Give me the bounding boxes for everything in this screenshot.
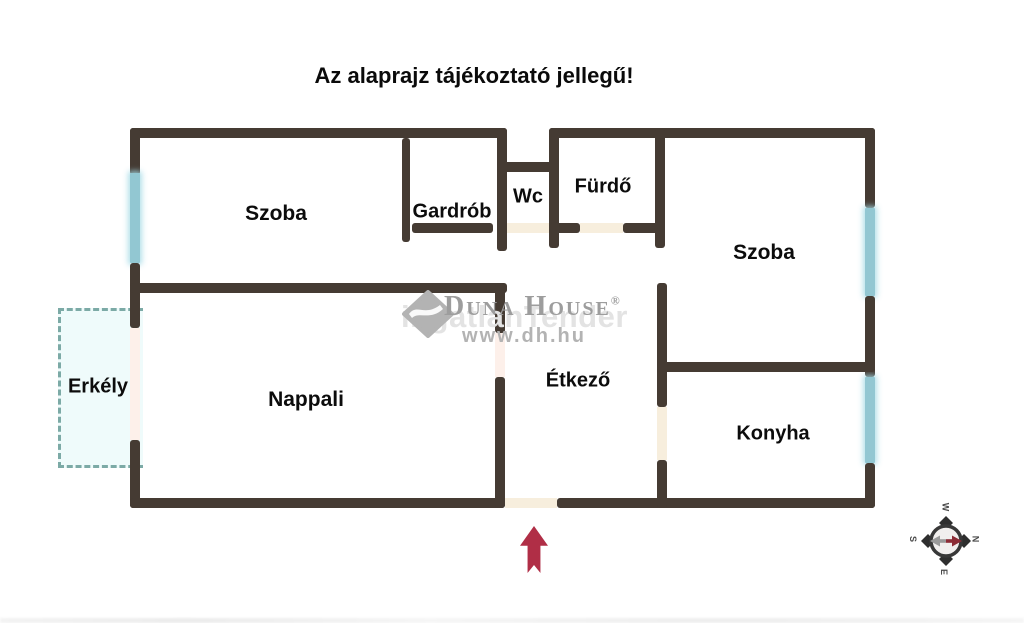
- wall: [865, 128, 875, 208]
- wall: [130, 128, 507, 138]
- wall-gardrob-left: [402, 138, 410, 242]
- wall: [130, 498, 505, 508]
- room-label-szoba-left: Szoba: [245, 202, 307, 226]
- room-label-nappali: Nappali: [268, 388, 344, 412]
- bottom-artifact: [0, 618, 1024, 623]
- wall: [549, 223, 580, 233]
- watermark-brand: Duna House®: [444, 291, 620, 323]
- wall-gardrob-wc-divider: [497, 128, 507, 251]
- room-label-wc: Wc: [513, 186, 543, 209]
- floor-plan: Az alaprajz tájékoztató jellegű! Szoba G…: [0, 0, 1024, 623]
- compass-letter-right: N: [970, 536, 980, 543]
- konyha-door-opening: [657, 407, 667, 460]
- registered-mark: ®: [611, 294, 620, 308]
- room-label-furdo: Fürdő: [575, 176, 632, 199]
- wall-furdo-right: [655, 128, 665, 248]
- balcony-door-opening: [130, 328, 140, 440]
- compass-letter-bottom: E: [939, 569, 949, 575]
- room-label-erkely: Erkély: [68, 376, 128, 399]
- window-right-lower: [865, 377, 875, 463]
- wall-gardrob-bottom: [412, 223, 493, 233]
- watermark-url: www.dh.hu: [462, 325, 586, 348]
- wall-szoba-konyha: [657, 362, 875, 372]
- room-label-gardrob: Gardrób: [413, 201, 492, 224]
- compass-rose-icon: [916, 511, 976, 571]
- wall: [130, 128, 140, 175]
- window-right-upper: [865, 208, 875, 296]
- wall: [130, 263, 140, 328]
- disclaimer-title: Az alaprajz tájékoztató jellegű!: [314, 63, 633, 89]
- room-label-konyha: Konyha: [736, 423, 809, 446]
- furdo-door-opening: [580, 223, 623, 233]
- wall: [557, 498, 875, 508]
- compass-letter-top: W: [940, 503, 950, 512]
- entrance-door-opening: [505, 498, 557, 508]
- brand-text: Duna House: [444, 291, 611, 322]
- wall-szoba-right-left: [657, 283, 667, 407]
- wall-nappali-right: [495, 377, 505, 508]
- entrance-arrow-icon: [520, 526, 548, 573]
- compass-letter-left: S: [908, 536, 918, 542]
- room-label-szoba-right: Szoba: [733, 241, 795, 265]
- wc-door-opening: [507, 223, 549, 233]
- room-label-etkezo: Étkező: [546, 370, 610, 393]
- wall: [549, 128, 875, 138]
- window-left: [130, 173, 140, 263]
- wall: [657, 460, 667, 508]
